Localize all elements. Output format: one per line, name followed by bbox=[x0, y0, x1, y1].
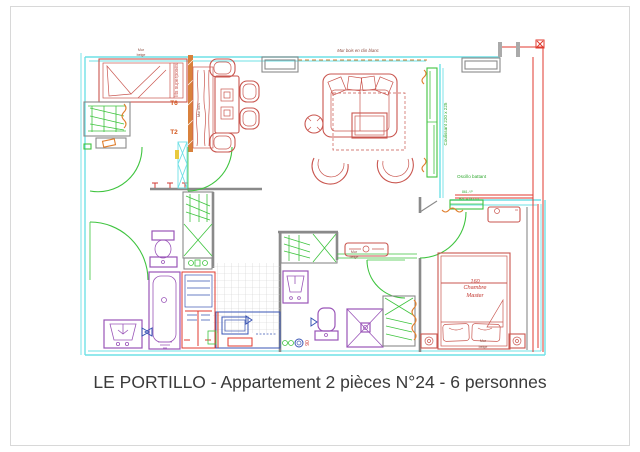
shower-tray bbox=[347, 309, 383, 347]
shower-room-door bbox=[367, 260, 405, 298]
interior-walls bbox=[150, 55, 527, 352]
kitchen bbox=[182, 263, 280, 348]
nightstand-left bbox=[421, 334, 437, 348]
shower-room: Mur beige 90 bbox=[281, 233, 417, 347]
radiator-terrace bbox=[488, 207, 520, 222]
coffee-table bbox=[352, 113, 387, 138]
armchair-right bbox=[377, 158, 413, 183]
window-box-right bbox=[462, 58, 500, 72]
bathtub bbox=[149, 272, 180, 349]
sliding-door-label: Coulissant 220 x 225 bbox=[443, 102, 448, 145]
vent-stub bbox=[498, 42, 502, 57]
living-room: Mur bois en clin blanc bbox=[305, 48, 500, 184]
door-label-t6: T6 bbox=[170, 100, 178, 107]
wall-label-mur: Mur bbox=[138, 48, 145, 52]
bedroom-window bbox=[450, 200, 483, 209]
kitchen-tall-unit bbox=[182, 272, 215, 348]
wood-panel-label: Mur bois bbox=[197, 103, 201, 117]
room-label-master: Master bbox=[466, 293, 484, 299]
tilt-turn-dim1: 861 / P bbox=[462, 190, 473, 194]
bunk-bed-room: lits superposés Mur beige bbox=[84, 48, 187, 188]
tap-icon bbox=[311, 318, 317, 326]
bathroom bbox=[104, 192, 213, 349]
nightstand-right bbox=[509, 334, 525, 348]
room-label-chambre: Chambre bbox=[463, 285, 486, 291]
shower-washbasin bbox=[283, 271, 308, 303]
window-box bbox=[262, 57, 298, 72]
bathroom-door bbox=[90, 222, 148, 280]
marker bbox=[175, 150, 179, 159]
master-bedroom: 160 Chambre Master Mur beige bbox=[421, 253, 525, 349]
plan-caption: LE PORTILLO - Appartement 2 pièces N°24 … bbox=[0, 372, 640, 393]
duct-column bbox=[175, 142, 187, 188]
wood-bench-panel bbox=[193, 67, 213, 148]
orange-wall bbox=[188, 55, 193, 152]
door-label-t2: T2 bbox=[170, 129, 178, 136]
tap-icon bbox=[142, 328, 152, 336]
bed-wall-label-beige: beige bbox=[479, 345, 488, 349]
door-stop-ticks bbox=[152, 183, 188, 188]
sliding-bay: Coulissant 220 x 225 Oscillo battant 861… bbox=[422, 68, 520, 222]
hall-wardrobe bbox=[183, 192, 213, 269]
vent-stub bbox=[516, 42, 520, 57]
toilet bbox=[150, 231, 177, 267]
radiator-wall-label-mur: Mur bbox=[351, 250, 358, 254]
bunk-bed-label: lits superposés bbox=[174, 63, 180, 97]
tilt-turn-label: Oscillo battant bbox=[457, 174, 487, 179]
wall-label-beige: beige bbox=[137, 53, 146, 57]
rug bbox=[333, 93, 405, 150]
radiator-wall-label-beige: beige bbox=[350, 255, 359, 259]
kitchen-dim-label: 90 bbox=[305, 340, 311, 346]
wood-cladding-label: Mur bois en clin blanc bbox=[337, 48, 379, 53]
dining-table bbox=[215, 76, 239, 133]
side-table bbox=[305, 115, 323, 133]
entry-door bbox=[84, 144, 142, 192]
armchair-left bbox=[312, 158, 348, 184]
shower-toilet bbox=[315, 308, 338, 340]
washbasin bbox=[104, 320, 142, 348]
hall-living-door bbox=[188, 147, 232, 191]
washer-symbols bbox=[283, 339, 304, 347]
entry-wardrobe bbox=[84, 102, 130, 148]
master-bed bbox=[438, 253, 510, 349]
center-wardrobe bbox=[281, 233, 337, 263]
sofa bbox=[323, 74, 397, 137]
bed-wall-label-mur: Mur bbox=[480, 339, 487, 343]
floor-plan-page: lits superposés Mur beige bbox=[0, 0, 640, 452]
bedroom-wardrobe bbox=[383, 296, 416, 346]
dining-chairs bbox=[210, 59, 259, 152]
bedroom-door bbox=[420, 201, 466, 258]
